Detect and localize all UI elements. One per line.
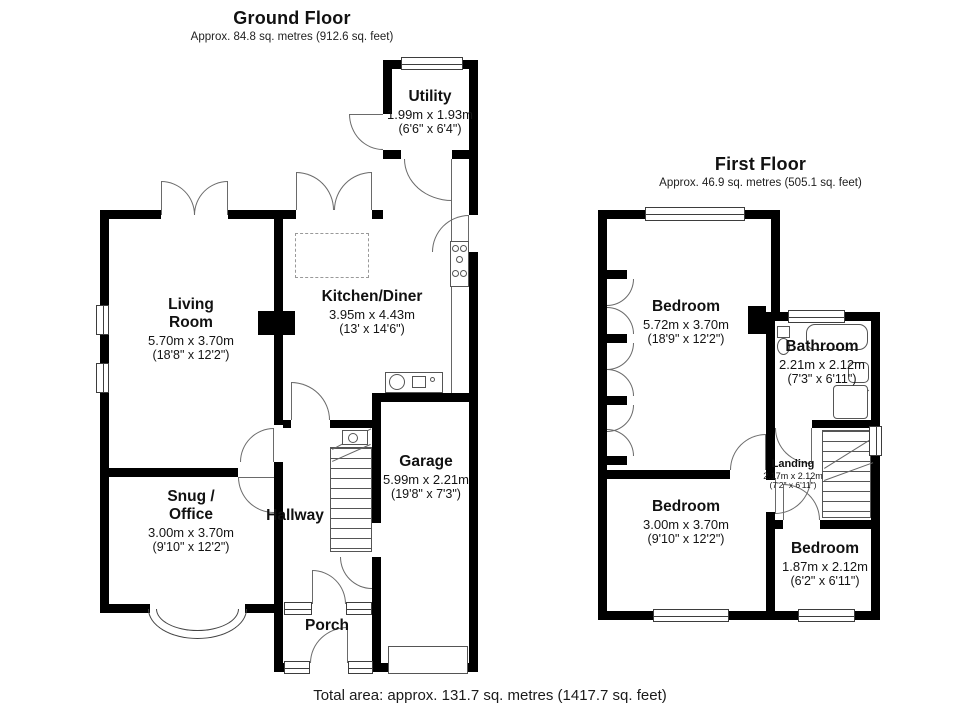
room-dim-imperial: (18'9" x 12'2") [612,332,760,347]
wall-segment [283,420,291,428]
window [869,426,882,456]
room-label-landing: Landing 2.17m x 2.12m (7'2" x 6'11") [754,458,832,491]
room-dim-imperial: (18'8" x 12'2") [121,348,261,363]
room-label-bedroom-3: Bedroom 1.87m x 2.12m (6'2" x 6'11") [767,540,883,589]
wall-segment [775,312,788,321]
room-name: Porch [287,617,367,635]
wc-basin-bowl [348,433,358,443]
room-label-garage: Garage 5.99m x 2.21m (19'8" x 7'3") [379,453,473,502]
wardrobe-door [607,369,634,396]
wall-segment [372,393,478,402]
door-swing [312,570,346,604]
window [653,609,729,622]
room-name: Snug / Office [155,488,227,524]
room-dim-metric: 5.99m x 2.21m [379,472,473,487]
door-swing [161,181,195,215]
washing-machine [389,374,405,390]
first-floor-area: Approx. 46.9 sq. metres (505.1 sq. feet) [638,177,883,189]
first-floor-header: First Floor Approx. 46.9 sq. metres (505… [638,154,883,189]
wardrobe-door [607,343,634,370]
chimney-breast [258,311,295,335]
room-dim-metric: 1.99m x 1.93m [383,107,477,122]
room-dim-imperial: (13' x 14'6") [297,322,447,337]
window [284,661,310,674]
room-dim-metric: 3.00m x 3.70m [121,525,261,540]
wall-segment [330,420,372,428]
door-swing [340,557,372,589]
door-swing [291,382,330,420]
window [798,609,855,622]
ground-floor-title: Ground Floor [167,8,417,29]
wall-segment [766,520,783,529]
room-label-living-room: Living Room 5.70m x 3.70m (18'8" x 12'2"… [121,296,261,363]
room-name: Utility [383,88,477,106]
wall-segment [274,462,283,672]
wall-segment [100,334,109,365]
wall-segment [100,210,161,219]
door-swing [404,159,452,201]
hob-burner [460,270,467,277]
window [96,305,109,335]
room-name: Bedroom [767,540,883,558]
window [645,207,745,221]
ground-floor-area: Approx. 84.8 sq. metres (912.6 sq. feet) [167,31,417,43]
window [788,310,845,323]
wall-segment [100,210,109,308]
room-dim-imperial: (7'2" x 6'11") [754,481,832,491]
window [346,602,372,615]
first-floor-title: First Floor [638,154,883,175]
staircase [330,447,372,552]
wall-segment [109,468,238,477]
wall-segment [771,210,780,318]
room-dim-imperial: (9'10" x 12'2") [612,532,760,547]
room-label-bedroom-main: Bedroom 5.72m x 3.70m (18'9" x 12'2") [612,298,760,347]
tap [430,377,435,382]
room-label-hallway: Hallway [253,507,337,525]
wall-segment [283,210,296,219]
wall-segment [372,210,383,219]
room-label-porch: Porch [287,617,367,635]
wall-segment [820,520,880,529]
room-label-bedroom-2: Bedroom 3.00m x 3.70m (9'10" x 12'2") [612,498,760,547]
floorplan-canvas: Ground Floor Approx. 84.8 sq. metres (91… [0,0,980,712]
room-name: Living Room [155,296,227,332]
wardrobe-divider [607,456,627,465]
wardrobe-divider [607,270,627,279]
hob-burner [452,245,459,252]
room-dim-imperial: (9'10" x 12'2") [121,540,261,555]
ground-floor-header: Ground Floor Approx. 84.8 sq. metres (91… [167,8,417,43]
wall-segment [871,456,880,620]
room-name: Landing [754,458,832,471]
room-name: Bedroom [612,298,760,316]
room-name: Kitchen/Diner [297,288,447,306]
window [284,602,312,615]
wall-segment [372,557,381,672]
room-dim-metric: 3.00m x 3.70m [612,517,760,532]
door-swing [334,172,372,210]
room-label-bathroom: Bathroom 2.21m x 2.12m (7'3" x 6'11") [763,338,881,387]
room-dim-metric: 3.95m x 4.43m [297,307,447,322]
garage-door [388,646,468,674]
wall-segment [598,470,730,479]
wall-segment [598,210,607,620]
room-label-kitchen-diner: Kitchen/Diner 3.95m x 4.43m (13' x 14'6"… [297,288,447,337]
hob-burner [456,256,463,263]
window [348,661,373,674]
wall-segment [855,611,880,620]
room-dim-imperial: (7'3" x 6'11") [763,372,881,387]
room-name: Hallway [253,507,337,525]
kitchen-island [295,233,369,278]
room-dim-imperial: (6'2" x 6'11") [767,574,883,589]
wall-segment [598,611,653,620]
hob-burner [460,245,467,252]
wall-segment [729,611,798,620]
shower [833,385,868,419]
room-dim-imperial: (19'8" x 7'3") [379,487,473,502]
room-name: Bathroom [763,338,881,356]
room-dim-metric: 1.87m x 2.12m [767,559,883,574]
door-swing [240,428,274,462]
wardrobe-door [607,429,634,456]
room-dim-metric: 5.72m x 3.70m [612,317,760,332]
toilet-cistern [777,326,790,338]
wall-segment [766,312,775,470]
room-dim-imperial: (6'6" x 6'4") [383,122,477,137]
door-swing [296,172,334,210]
room-dim-metric: 2.21m x 2.12m [763,357,881,372]
sink-bowl [412,376,426,388]
wardrobe-divider [607,396,627,405]
total-area-text: Total area: approx. 131.7 sq. metres (14… [0,687,980,704]
window [401,57,463,70]
wall-segment [274,663,284,672]
wall-segment [383,150,401,159]
room-name: Garage [379,453,473,471]
room-label-snug-office: Snug / Office 3.00m x 3.70m (9'10" x 12'… [121,488,261,555]
wall-segment [469,60,478,215]
window [96,363,109,393]
door-swing [349,114,383,150]
room-name: Bedroom [612,498,760,516]
room-dim-metric: 5.70m x 3.70m [121,333,261,348]
wall-segment [100,604,150,613]
hob-burner [452,270,459,277]
wall-segment [100,391,109,613]
wardrobe-door [607,405,634,432]
door-swing [194,181,228,215]
room-label-utility: Utility 1.99m x 1.93m (6'6" x 6'4") [383,88,477,137]
